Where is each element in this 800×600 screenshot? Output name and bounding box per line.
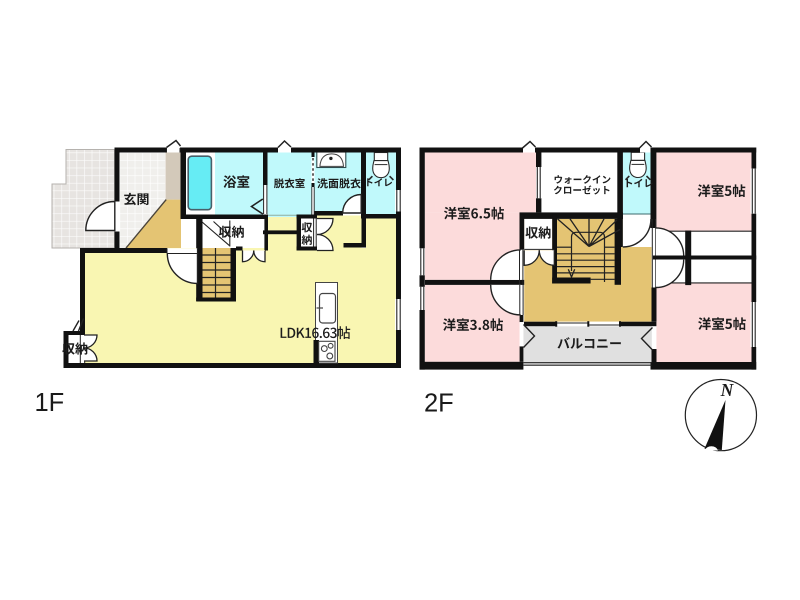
- svg-text:1F: 1F: [35, 389, 65, 417]
- svg-text:2F: 2F: [424, 390, 454, 418]
- svg-text:N: N: [720, 380, 735, 400]
